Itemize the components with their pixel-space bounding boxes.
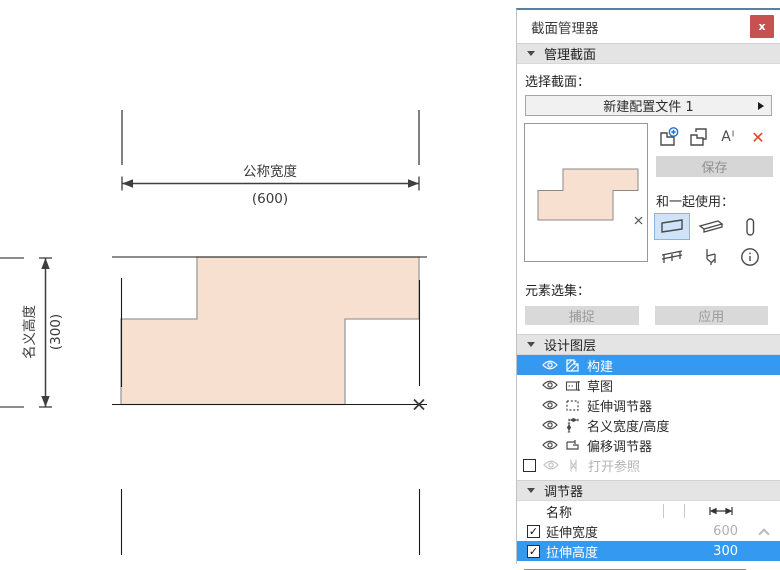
layer-row-construction[interactable]: 构建 — [517, 355, 780, 375]
profile-preview[interactable] — [524, 123, 648, 262]
construction-layer-icon — [565, 358, 580, 373]
manage-section-label: 管理截面 — [544, 44, 596, 63]
name-column-header: 名称 — [546, 502, 572, 521]
nominal-size-icon — [565, 418, 580, 433]
width-dim-arrow-left — [122, 179, 133, 187]
checkbox-checked[interactable] — [527, 525, 540, 538]
modifiers-section-header[interactable]: 调节器 — [517, 480, 780, 501]
profile-drawing-canvas[interactable]: 公称宽度 (600) 名义高度 (300) — [0, 0, 516, 564]
element-selection-label: 元素选集： — [517, 276, 780, 304]
eye-icon[interactable] — [542, 440, 558, 450]
design-layers-label: 设计图层 — [544, 335, 596, 354]
eye-icon[interactable] — [542, 420, 558, 430]
new-profile-icon[interactable] — [656, 125, 682, 149]
modifier-row-stretch-height[interactable]: 拉伸高度 300 — [517, 541, 780, 561]
sketch-layer-icon — [565, 378, 580, 393]
layer-label: 构建 — [587, 356, 613, 375]
eye-icon[interactable] — [542, 380, 558, 390]
profile-dropdown-value: 新建配置文件 1 — [603, 96, 693, 115]
column-divider — [684, 504, 685, 518]
height-dim-arrow-top — [41, 258, 49, 269]
eye-icon[interactable] — [543, 460, 559, 470]
profile-preview-thumbnail — [525, 124, 647, 261]
panel-titlebar: 截面管理器 x — [517, 10, 780, 43]
profile-dropdown[interactable]: 新建配置文件 1 — [525, 95, 772, 116]
design-layers-section-header[interactable]: 设计图层 — [517, 334, 780, 355]
modifier-row-stretch-width[interactable]: 延伸宽度 600 — [517, 521, 780, 541]
preview-origin-marker-icon — [635, 217, 642, 224]
profile-shape[interactable] — [121, 257, 419, 405]
layer-label: 偏移调节器 — [587, 436, 652, 455]
profile-drawing: 公称宽度 (600) 名义高度 (300) — [0, 0, 516, 564]
capture-button[interactable]: 捕捉 — [525, 306, 639, 325]
wall-icon[interactable] — [654, 213, 690, 240]
checkbox-unchecked[interactable] — [523, 459, 536, 472]
profile-manager-panel: 截面管理器 x 管理截面 选择截面： 新建配置文件 1 — [516, 8, 780, 564]
stretch-modifier-icon — [565, 398, 580, 413]
collapse-triangle-icon — [527, 342, 535, 347]
modifiers-table-header: 名称 — [517, 501, 780, 521]
offset-modifier-icon — [565, 438, 580, 453]
rename-icon[interactable]: Aᴵ — [715, 125, 741, 149]
scroll-up-icon[interactable] — [758, 528, 769, 539]
layer-row-open-reference[interactable]: 打开参照 — [517, 455, 780, 475]
layer-row-stretch-modifier[interactable]: 延伸调节器 — [517, 395, 780, 415]
width-dim-arrow-right — [408, 179, 419, 187]
modifiers-label: 调节器 — [544, 481, 583, 500]
apply-button[interactable]: 应用 — [655, 306, 769, 325]
info-icon[interactable] — [732, 243, 768, 270]
modifier-value[interactable]: 300 — [713, 544, 738, 559]
column-divider — [663, 504, 664, 518]
column-icon[interactable] — [732, 213, 768, 240]
modifier-label: 拉伸高度 — [546, 542, 598, 561]
reference-icon — [566, 458, 581, 473]
dimension-column-icon — [707, 506, 735, 516]
design-layers-list: 构建 草图 延伸调节器 — [517, 355, 780, 475]
collapse-triangle-icon — [527, 488, 535, 493]
layer-label: 打开参照 — [588, 456, 640, 475]
layer-row-sketch[interactable]: 草图 — [517, 375, 780, 395]
object-icon[interactable] — [693, 243, 729, 270]
height-dim-arrow-bottom — [41, 396, 49, 407]
height-dim-value: (300) — [48, 314, 64, 350]
select-profile-label: 选择截面： — [517, 64, 780, 95]
width-dim-label: 公称宽度 — [243, 163, 297, 180]
panel-title: 截面管理器 — [531, 17, 750, 37]
dropdown-arrow-icon — [758, 102, 764, 110]
use-with-label: 和一起使用： — [656, 191, 775, 210]
eye-icon[interactable] — [542, 400, 558, 410]
width-dim-value: (600) — [252, 191, 288, 207]
layer-label: 名义宽度/高度 — [587, 416, 669, 435]
eye-icon[interactable] — [542, 360, 558, 370]
modifier-label: 延伸宽度 — [546, 522, 598, 541]
collapse-triangle-icon — [527, 51, 535, 56]
layer-label: 草图 — [587, 376, 613, 395]
layer-label: 延伸调节器 — [587, 396, 652, 415]
railing-icon[interactable] — [654, 243, 690, 270]
beam-icon[interactable] — [693, 213, 729, 240]
layer-row-offset-modifier[interactable]: 偏移调节器 — [517, 435, 780, 455]
height-dim-label: 名义高度 — [21, 305, 38, 359]
manage-section-header[interactable]: 管理截面 — [517, 43, 780, 64]
checkbox-checked[interactable] — [527, 545, 540, 558]
duplicate-profile-icon[interactable] — [686, 125, 712, 149]
modifiers-table: 名称 延伸宽度 600 拉伸高度 300 — [517, 501, 780, 570]
layer-row-nominal-size[interactable]: 名义宽度/高度 — [517, 415, 780, 435]
close-icon[interactable]: x — [750, 15, 774, 38]
save-button[interactable]: 保存 — [656, 156, 773, 177]
modifier-value[interactable]: 600 — [713, 524, 738, 539]
delete-icon[interactable]: ✕ — [745, 125, 771, 149]
